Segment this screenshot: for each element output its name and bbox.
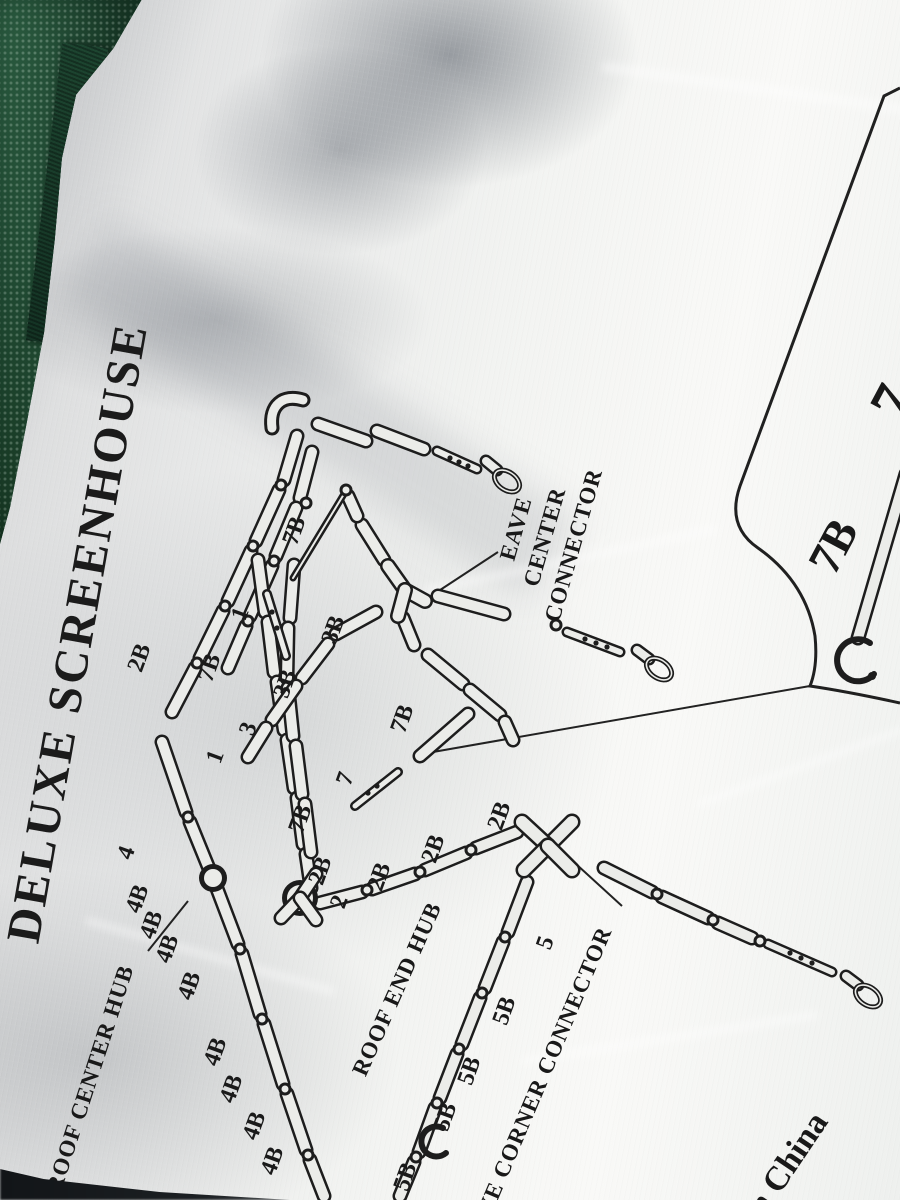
paper-sheet: DELUXE SCREENHOUSE ROOF CENTER HUB ROOF … <box>0 0 900 1200</box>
assembly-diagram-linework <box>0 0 900 1200</box>
photo-instruction-sheet: DELUXE SCREENHOUSE ROOF CENTER HUB ROOF … <box>0 0 900 1200</box>
